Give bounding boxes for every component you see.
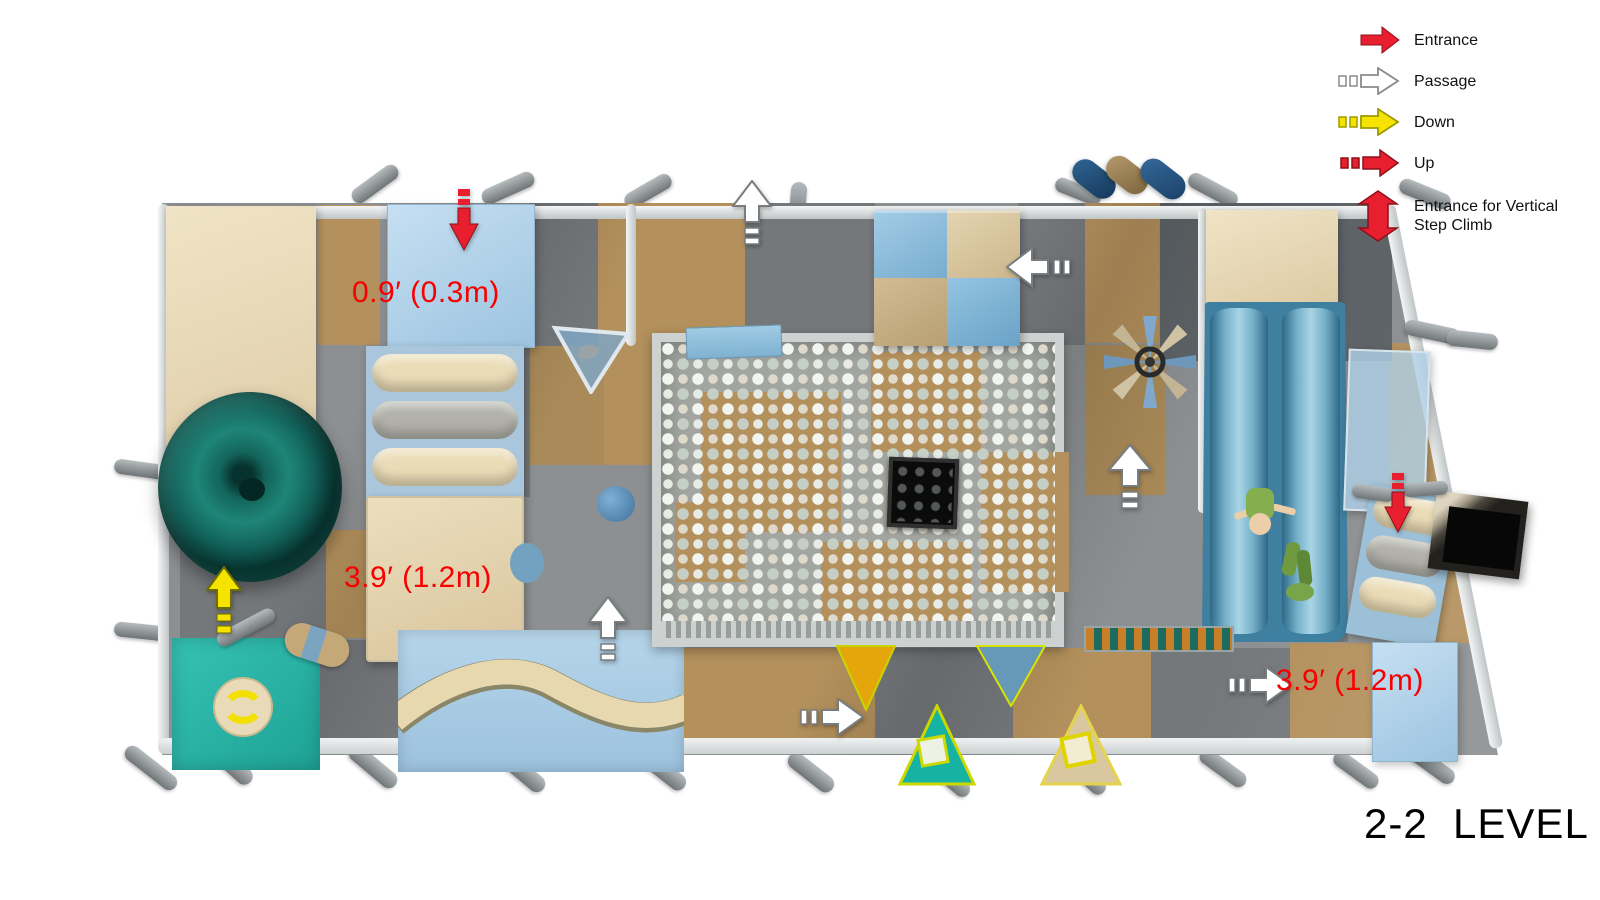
- legend-row-passage: Passage: [1336, 67, 1596, 95]
- legend-row-down: Down: [1336, 108, 1596, 136]
- windmill-spinner: [1098, 312, 1202, 412]
- child-figure: [1232, 480, 1342, 630]
- passage-up-arrow-icon: [732, 180, 772, 248]
- frame-post: [784, 749, 837, 796]
- crawl-tunnel-box: [1428, 491, 1529, 580]
- passage-arrow-icon: [1336, 67, 1400, 95]
- roller: [1356, 574, 1439, 621]
- legend-row-entrance: Entrance: [1336, 26, 1596, 54]
- page-title: 2-2 LEVEL: [1364, 800, 1589, 848]
- passage-up-arrow-icon: [588, 596, 628, 664]
- ball-pit-floor-tile: [675, 502, 745, 582]
- bottom-rail: [158, 738, 1436, 754]
- down-arrow-icon: [449, 188, 479, 252]
- slide-top-platform: [1206, 210, 1338, 310]
- roller: [372, 354, 518, 392]
- legend-label: Entrance for Vertical Step Climb: [1414, 197, 1579, 235]
- vertical-step-climb-arrow-icon: [1336, 190, 1400, 242]
- frame-post: [479, 169, 537, 206]
- passage-up-arrow-icon: [1108, 444, 1152, 512]
- down-arrow-icon: [1384, 472, 1412, 534]
- triangle-wedge: [550, 322, 632, 394]
- frame-post: [1445, 329, 1498, 350]
- legend: Entrance Passage Down: [1336, 26, 1596, 242]
- legend-row-vertical-step-climb: Entrance for Vertical Step Climb: [1336, 190, 1596, 242]
- roller: [372, 401, 518, 439]
- ball-pit-hatch: [887, 457, 959, 529]
- landing-platform: [1372, 642, 1458, 762]
- legend-label: Up: [1414, 154, 1434, 173]
- pyramid-tan: [1040, 704, 1122, 786]
- entrance-arrow-icon: [1336, 26, 1400, 54]
- ball-pit-floor-tile: [701, 392, 841, 532]
- up-arrow-yellow-icon: [206, 566, 242, 638]
- spinner-seat: [212, 676, 274, 738]
- up-arrow-icon: [1336, 149, 1400, 177]
- ball-pit-floor-tile: [981, 452, 1069, 592]
- playground-plan: 0.9′ (0.3m) 3.9′ (1.2m) 3.9′ (1.2m) Entr…: [0, 0, 1600, 900]
- height-label: 3.9′ (1.2m): [1276, 664, 1424, 698]
- roller-steps: [366, 346, 524, 498]
- tunnel-opening: [1442, 506, 1520, 570]
- bowl-center-hole: [239, 478, 265, 501]
- pyramid-teal: [898, 704, 976, 786]
- ball-pit-floor-tile: [871, 352, 981, 452]
- entry-ramp: [685, 324, 782, 359]
- ball-ornament: [597, 486, 635, 522]
- wave-bridge-section: [398, 630, 684, 772]
- frame-post: [348, 162, 401, 207]
- height-label: 0.9′ (0.3m): [352, 276, 500, 310]
- height-label: 3.9′ (1.2m): [344, 561, 492, 595]
- ball-pit: [652, 333, 1064, 647]
- ball-pit-walkway: [661, 621, 1055, 638]
- foam-cylinder-blue: [1135, 153, 1190, 204]
- legend-label: Passage: [1414, 72, 1476, 91]
- pop-out-disc: [510, 543, 544, 583]
- block-blue: [947, 278, 1020, 346]
- passage-right-arrow-icon: [800, 698, 864, 736]
- legend-label: Down: [1414, 113, 1455, 132]
- roller: [372, 448, 518, 486]
- pennant-blue: [976, 645, 1046, 707]
- floor-tile: [318, 205, 380, 345]
- block-tan: [874, 278, 947, 346]
- down-arrow-icon: [1336, 108, 1400, 136]
- legend-label: Entrance: [1414, 31, 1478, 50]
- legend-row-up: Up: [1336, 149, 1596, 177]
- vortex-spinner-bowl: [158, 392, 342, 582]
- block-blue: [874, 210, 947, 278]
- passage-left-arrow-icon: [1006, 246, 1070, 288]
- rung-bridge: [1084, 626, 1234, 652]
- checker-blocks: [874, 210, 1020, 346]
